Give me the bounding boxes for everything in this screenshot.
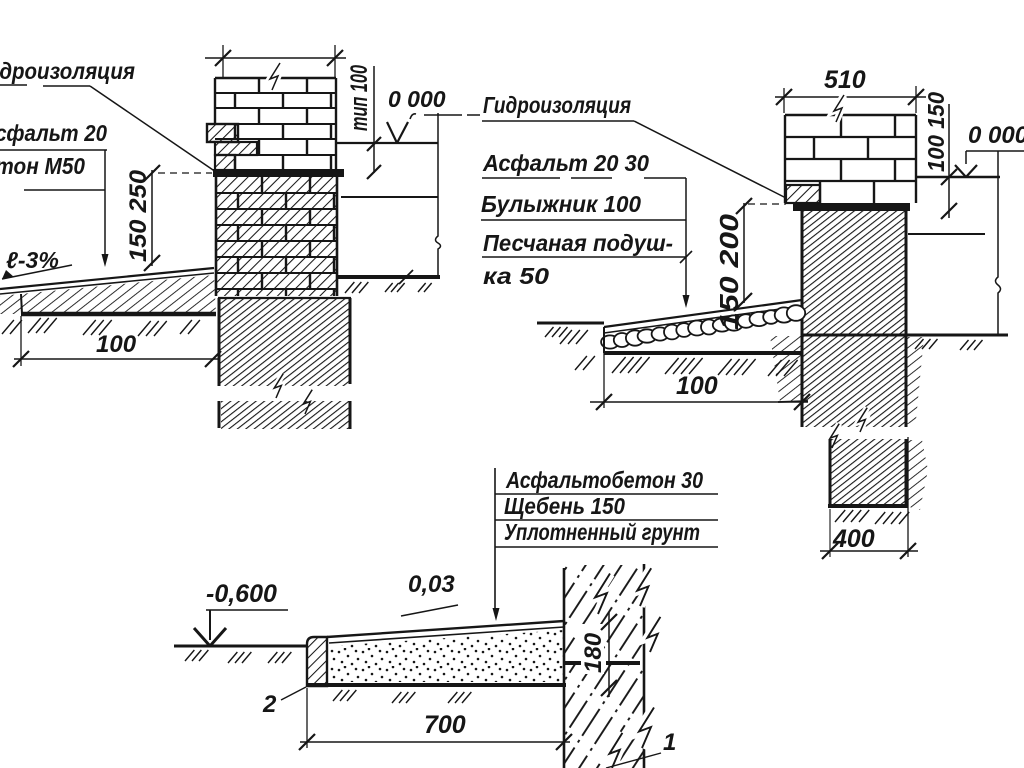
svg-text:150 250: 150 250 — [125, 169, 152, 262]
svg-text:150 200: 150 200 — [714, 213, 744, 330]
svg-text:ка 50: ка 50 — [483, 263, 549, 289]
svg-text:1: 1 — [663, 729, 676, 756]
svg-text:0 000: 0 000 — [388, 86, 446, 112]
svg-text:Щебень 150: Щебень 150 — [504, 493, 625, 519]
svg-text:Гидроизоляция: Гидроизоляция — [483, 92, 631, 118]
svg-text:0 000: 0 000 — [968, 122, 1024, 149]
svg-text:2: 2 — [262, 691, 277, 718]
svg-text:Бетон М50: Бетон М50 — [0, 153, 85, 179]
svg-text:-0,600: -0,600 — [206, 580, 277, 608]
svg-text:Песчаная подуш-: Песчаная подуш- — [483, 230, 673, 256]
svg-text:100 150: 100 150 — [923, 92, 949, 172]
svg-text:Гидроизоляция: Гидроизоляция — [0, 58, 135, 84]
svg-text:0,03: 0,03 — [408, 571, 455, 598]
svg-text:Асфальт 20 30: Асфальт 20 30 — [482, 150, 649, 176]
svg-text:400: 400 — [832, 525, 875, 553]
svg-text:100: 100 — [96, 331, 137, 358]
svg-text:Булыжник 100: Булыжник 100 — [481, 191, 641, 217]
svg-text:100: 100 — [676, 372, 718, 400]
svg-text:Асфальт 20: Асфальт 20 — [0, 120, 107, 146]
svg-text:тип 100: тип 100 — [346, 65, 373, 131]
svg-text:510: 510 — [824, 66, 866, 94]
svg-text:Уплотненный грунт: Уплотненный грунт — [504, 519, 700, 545]
svg-text:180: 180 — [580, 632, 607, 673]
svg-text:700: 700 — [424, 711, 466, 739]
svg-text:Асфальтобетон 30: Асфальтобетон 30 — [505, 467, 703, 493]
